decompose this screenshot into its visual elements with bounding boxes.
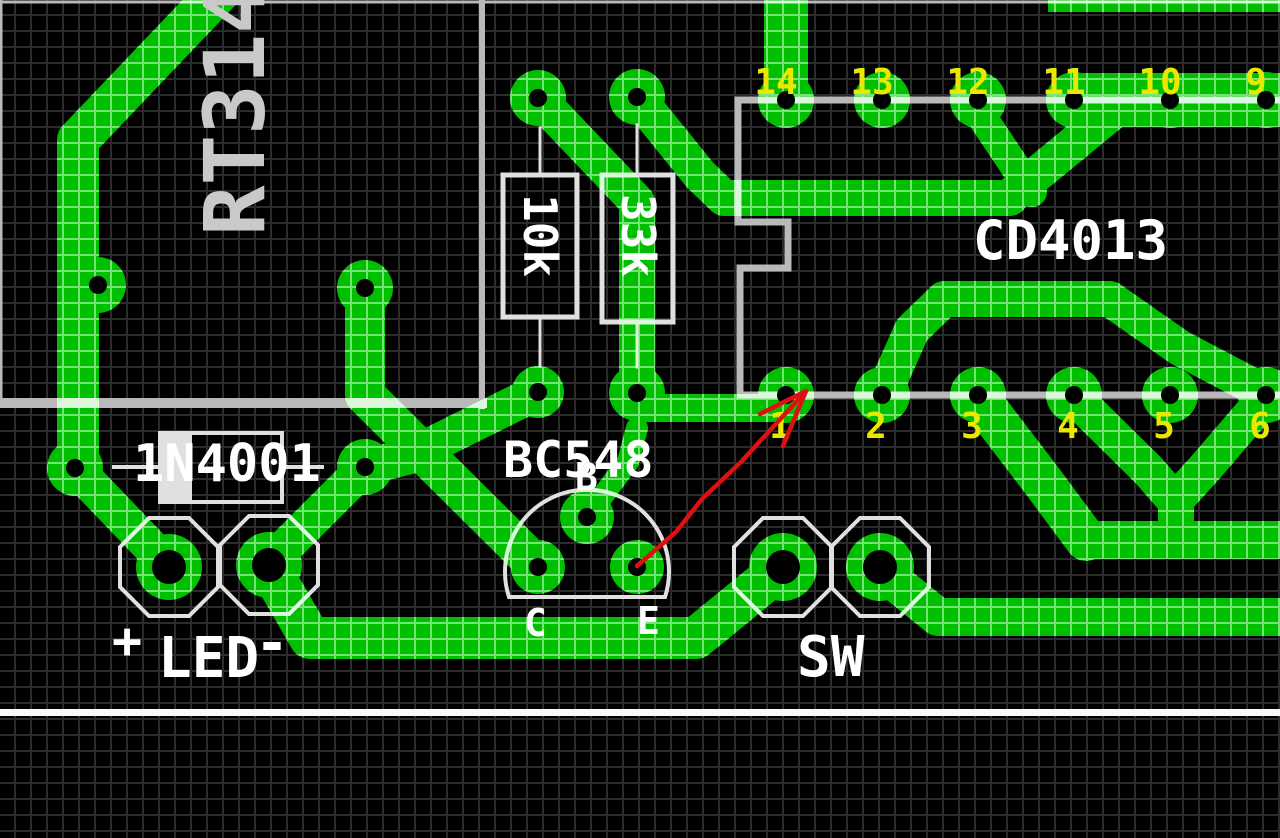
pin-number-10: 10 — [1138, 62, 1181, 103]
pin-number-9: 9 — [1245, 62, 1267, 103]
pin-number-12: 12 — [946, 62, 989, 103]
diode-name-label[interactable]: 1N4001 — [133, 434, 321, 494]
pin-number-2: 2 — [865, 406, 887, 447]
pin-number-3: 3 — [961, 406, 983, 447]
pin-number-14: 14 — [754, 62, 797, 103]
board-bottom-edge-line — [0, 709, 1280, 716]
pin-number-4: 4 — [1057, 406, 1079, 447]
led-minus-label: - — [255, 611, 289, 676]
ic-name-label[interactable]: CD4013 — [973, 209, 1168, 272]
resistor2-value-label[interactable]: 33k — [611, 194, 665, 277]
transistor-name-label[interactable]: BC548 — [503, 431, 654, 489]
pin-number-11: 11 — [1042, 62, 1085, 103]
pcb-editor-canvas: RT314 10k 33k 1N4001 B BC548 C E CD4013 … — [0, 0, 1280, 838]
pcb-layout-view: RT314 10k 33k 1N4001 B BC548 C E CD4013 … — [0, 0, 1280, 838]
resistor1-value-label[interactable]: 10k — [513, 194, 567, 277]
pin-number-5: 5 — [1153, 406, 1175, 447]
led-label[interactable]: LED — [158, 626, 259, 691]
pin-number-6: 6 — [1249, 406, 1271, 447]
led-plus-label: + — [112, 612, 142, 670]
transistor-pin-e-label: E — [637, 599, 660, 643]
pin-number-13: 13 — [850, 62, 893, 103]
trimmer-label[interactable]: RT314 — [186, 0, 284, 236]
transistor-pin-c-label: C — [524, 601, 547, 645]
switch-label[interactable]: SW — [797, 625, 865, 690]
